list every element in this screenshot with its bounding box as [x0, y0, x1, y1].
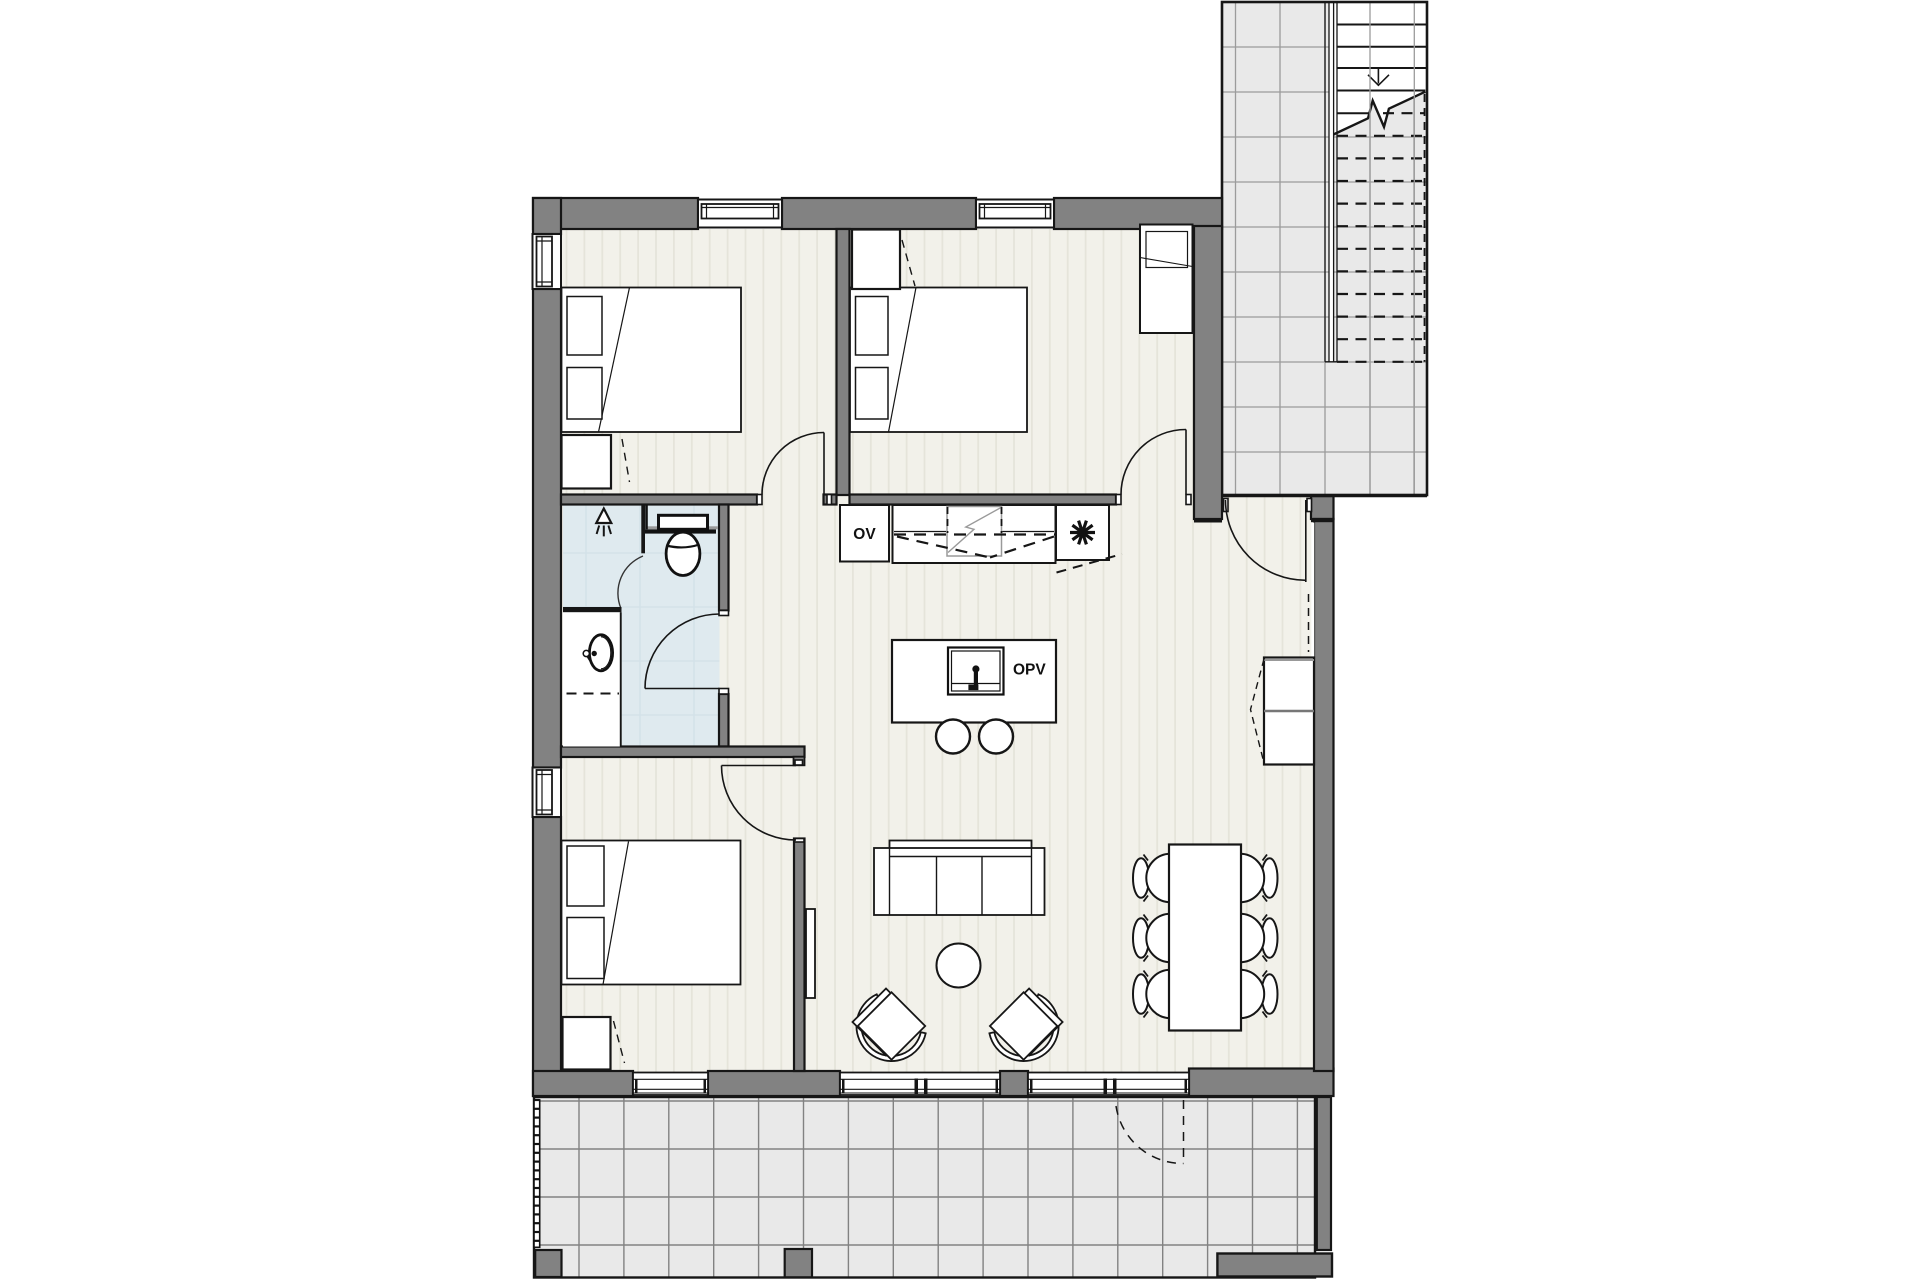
svg-text:OPV: OPV: [1013, 662, 1046, 679]
svg-text:OV: OV: [853, 526, 876, 543]
